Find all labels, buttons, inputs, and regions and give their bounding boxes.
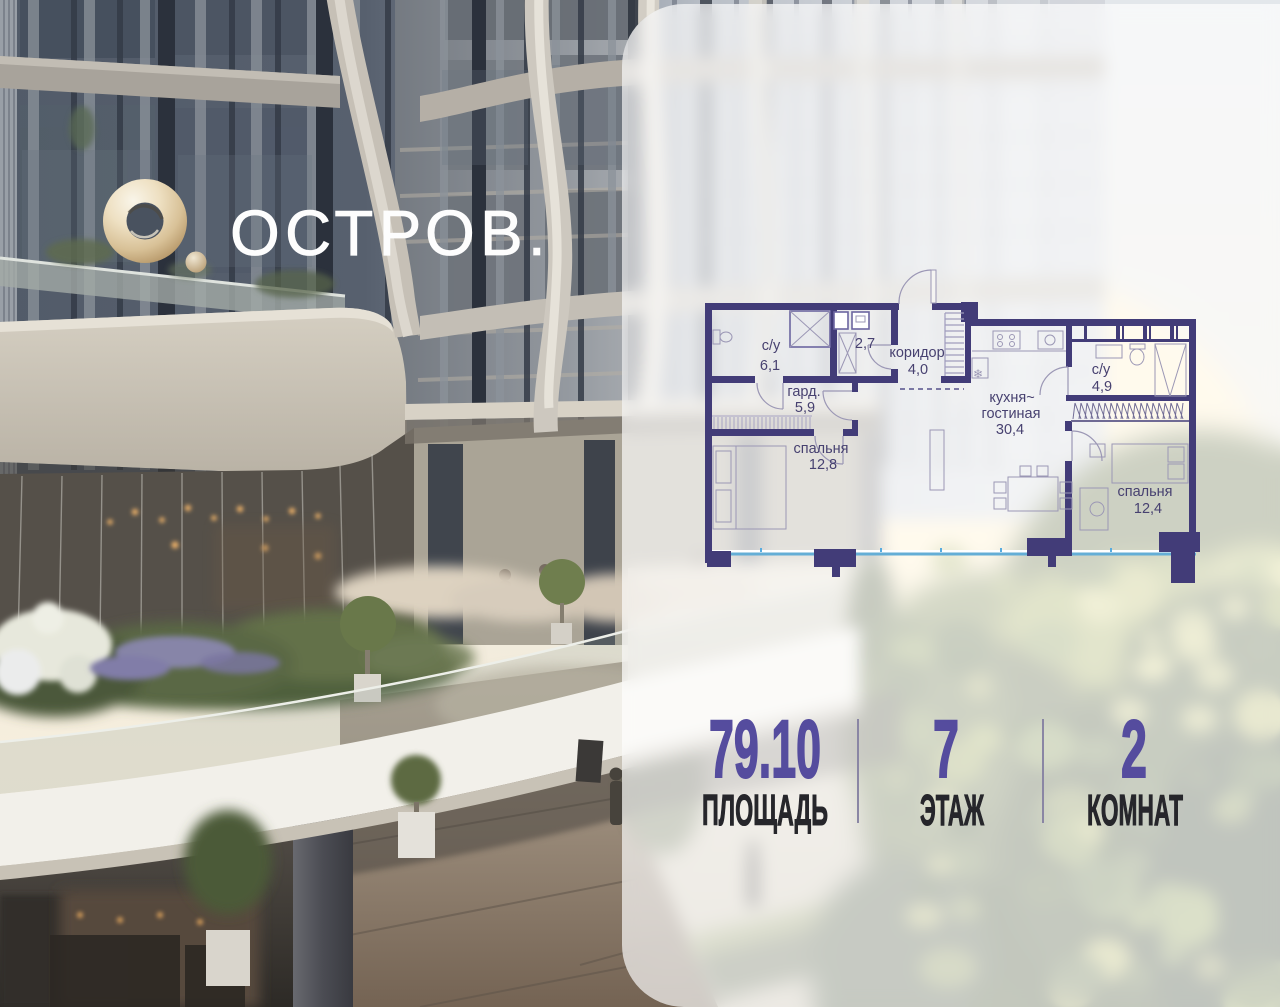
svg-text:5,9: 5,9 (795, 400, 815, 416)
svg-text:❄: ❄ (973, 367, 983, 381)
svg-text:кухня~: кухня~ (989, 390, 1034, 406)
svg-text:КОМНАТ: КОМНАТ (1087, 786, 1183, 835)
svg-text:2: 2 (1121, 704, 1147, 795)
svg-text:гостиная: гостиная (982, 406, 1041, 422)
svg-text:2,7: 2,7 (855, 336, 875, 352)
svg-text:спальня: спальня (793, 441, 848, 457)
svg-text:ПЛОЩАДЬ: ПЛОЩАДЬ (702, 786, 828, 835)
svg-text:гард.: гард. (787, 384, 820, 400)
svg-text:4,9: 4,9 (1092, 379, 1112, 395)
svg-text:79.10: 79.10 (709, 704, 821, 795)
svg-text:коридор: коридор (889, 345, 944, 361)
svg-text:30,4: 30,4 (996, 422, 1024, 438)
svg-text:спальня: спальня (1117, 484, 1172, 500)
svg-text:ЭТАЖ: ЭТАЖ (920, 786, 984, 835)
svg-text:7: 7 (933, 704, 959, 795)
svg-text:с/у: с/у (762, 338, 781, 354)
svg-text:4,0: 4,0 (908, 362, 928, 378)
svg-text:12,4: 12,4 (1134, 501, 1162, 517)
svg-text:с/у: с/у (1092, 362, 1111, 378)
svg-text:6,1: 6,1 (760, 358, 780, 374)
svg-text:12,8: 12,8 (809, 457, 837, 473)
